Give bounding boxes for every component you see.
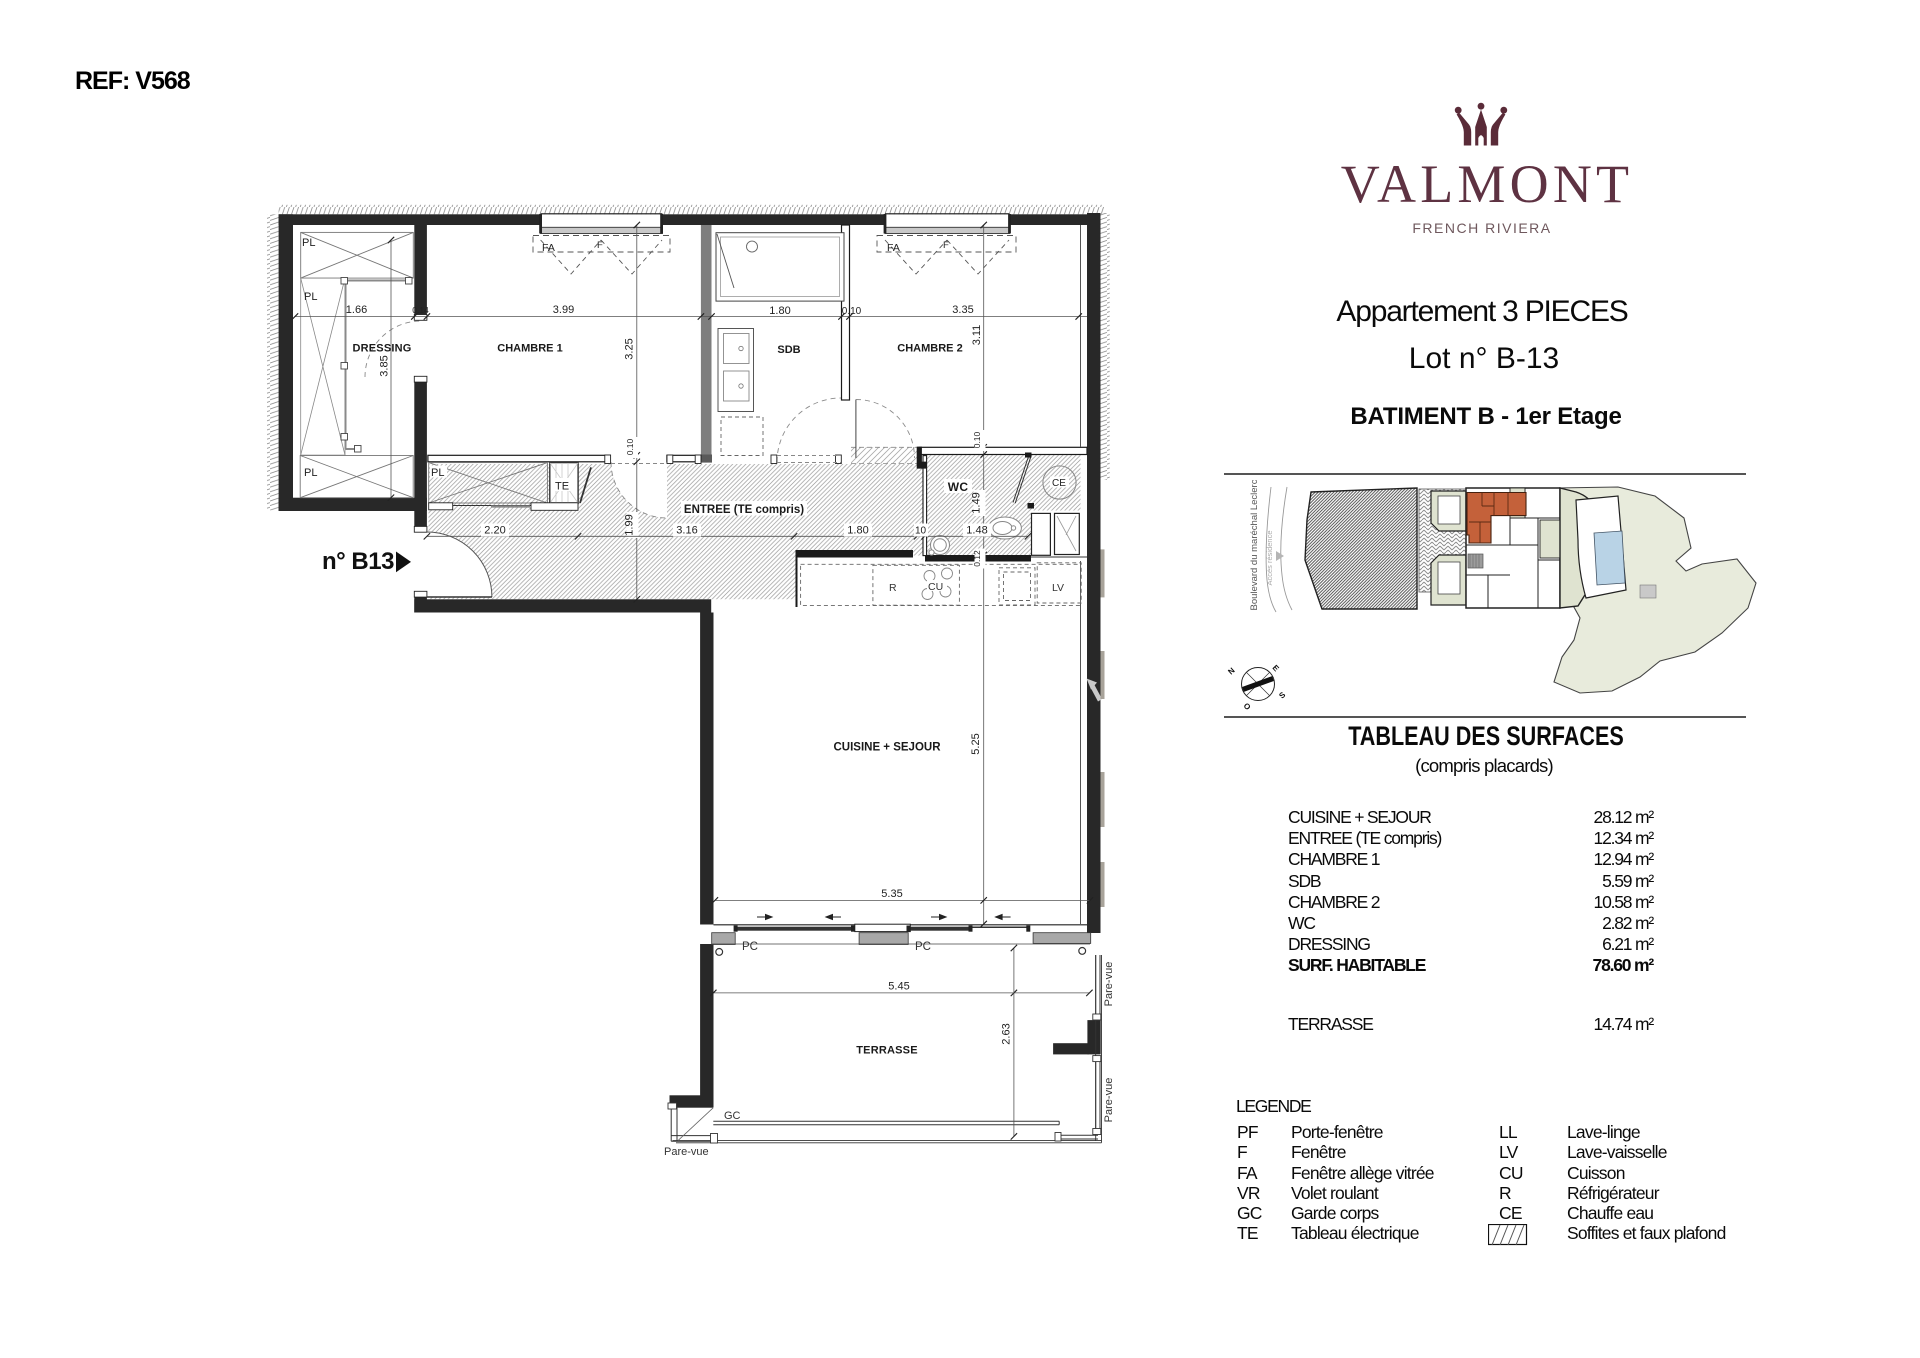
svg-text:10: 10 [915, 526, 927, 537]
svg-text:1.80: 1.80 [769, 305, 790, 317]
svg-text:ENTREE (TE compris): ENTREE (TE compris) [684, 504, 804, 516]
svg-text:3.16: 3.16 [676, 525, 697, 537]
svg-text:FA: FA [887, 242, 900, 254]
svg-text:CHAMBRE 1: CHAMBRE 1 [497, 343, 562, 355]
svg-text:CU: CU [928, 581, 943, 593]
svg-text:GC: GC [724, 1110, 741, 1122]
svg-text:1.99: 1.99 [624, 514, 636, 535]
svg-text:2.63: 2.63 [1001, 1023, 1013, 1044]
svg-text:S: S [1277, 690, 1287, 701]
svg-text:0.14: 0.14 [412, 305, 429, 315]
svg-text:LV: LV [1052, 582, 1064, 594]
svg-text:n° B13: n° B13 [322, 548, 394, 575]
svg-text:F: F [597, 240, 603, 251]
svg-text:E: E [1271, 663, 1282, 674]
svg-text:1.80: 1.80 [847, 525, 868, 537]
svg-text:3.99: 3.99 [553, 304, 574, 316]
svg-text:N: N [1226, 666, 1236, 677]
svg-text:Pare-vue: Pare-vue [664, 1146, 709, 1158]
svg-text:PL: PL [304, 467, 317, 479]
svg-text:WC: WC [948, 480, 969, 494]
svg-text:5.45: 5.45 [888, 981, 909, 993]
svg-text:1.49: 1.49 [971, 492, 983, 513]
svg-text:O: O [1242, 701, 1253, 712]
svg-text:0.10: 0.10 [625, 438, 635, 455]
svg-text:CUISINE + SEJOUR: CUISINE + SEJOUR [833, 742, 941, 754]
svg-text:Pare-vue: Pare-vue [1103, 1078, 1115, 1123]
svg-text:R: R [889, 582, 897, 594]
svg-text:3.11: 3.11 [971, 325, 983, 346]
svg-text:0.10: 0.10 [972, 431, 982, 448]
svg-text:DRESSING: DRESSING [352, 343, 411, 355]
svg-text:Boulevard du maréchal Leclerc: Boulevard du maréchal Leclerc [1249, 480, 1260, 610]
svg-text:3.25: 3.25 [624, 338, 636, 359]
svg-text:CE: CE [1052, 478, 1066, 489]
svg-text:PL: PL [302, 237, 315, 249]
svg-text:PL: PL [304, 291, 317, 303]
svg-text:0.12: 0.12 [972, 550, 982, 567]
svg-text:1.66: 1.66 [346, 304, 367, 316]
svg-text:CHAMBRE 2: CHAMBRE 2 [897, 343, 962, 355]
svg-text:F: F [943, 240, 949, 251]
svg-text:PC: PC [742, 941, 758, 953]
svg-text:Pare-vue: Pare-vue [1103, 962, 1115, 1007]
svg-text:PC: PC [915, 941, 931, 953]
svg-text:SDB: SDB [777, 344, 800, 356]
svg-text:Accès résidence: Accès résidence [1265, 530, 1274, 585]
svg-text:TE: TE [555, 481, 569, 493]
svg-text:0.10: 0.10 [842, 306, 862, 317]
svg-text:PL: PL [431, 467, 444, 479]
svg-text:5.35: 5.35 [881, 888, 902, 900]
svg-text:3.85: 3.85 [379, 355, 391, 376]
svg-text:FA: FA [542, 242, 555, 254]
svg-text:TERRASSE: TERRASSE [856, 1045, 918, 1057]
svg-text:2.20: 2.20 [484, 525, 505, 537]
svg-text:1.48: 1.48 [966, 525, 987, 537]
svg-text:3.35: 3.35 [952, 304, 973, 316]
svg-text:5.25: 5.25 [970, 733, 982, 754]
